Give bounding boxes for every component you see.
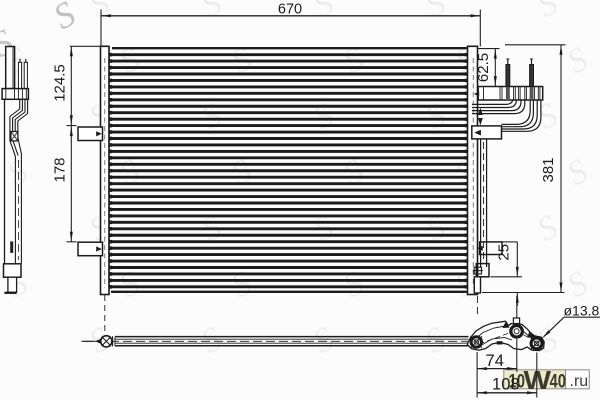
- svg-text:62.5: 62.5: [475, 53, 492, 82]
- svg-text:ø13.8: ø13.8: [564, 302, 600, 318]
- svg-text:178: 178: [52, 157, 69, 182]
- svg-text:108: 108: [492, 376, 520, 394]
- svg-text:40: 40: [550, 371, 567, 392]
- svg-text:74: 74: [486, 352, 504, 370]
- svg-text:W: W: [524, 365, 552, 395]
- svg-text:124.5: 124.5: [52, 64, 69, 102]
- svg-text:.ru: .ru: [570, 373, 589, 390]
- svg-text:381: 381: [540, 157, 557, 182]
- svg-text:670: 670: [278, 1, 302, 17]
- svg-text:25: 25: [496, 244, 513, 261]
